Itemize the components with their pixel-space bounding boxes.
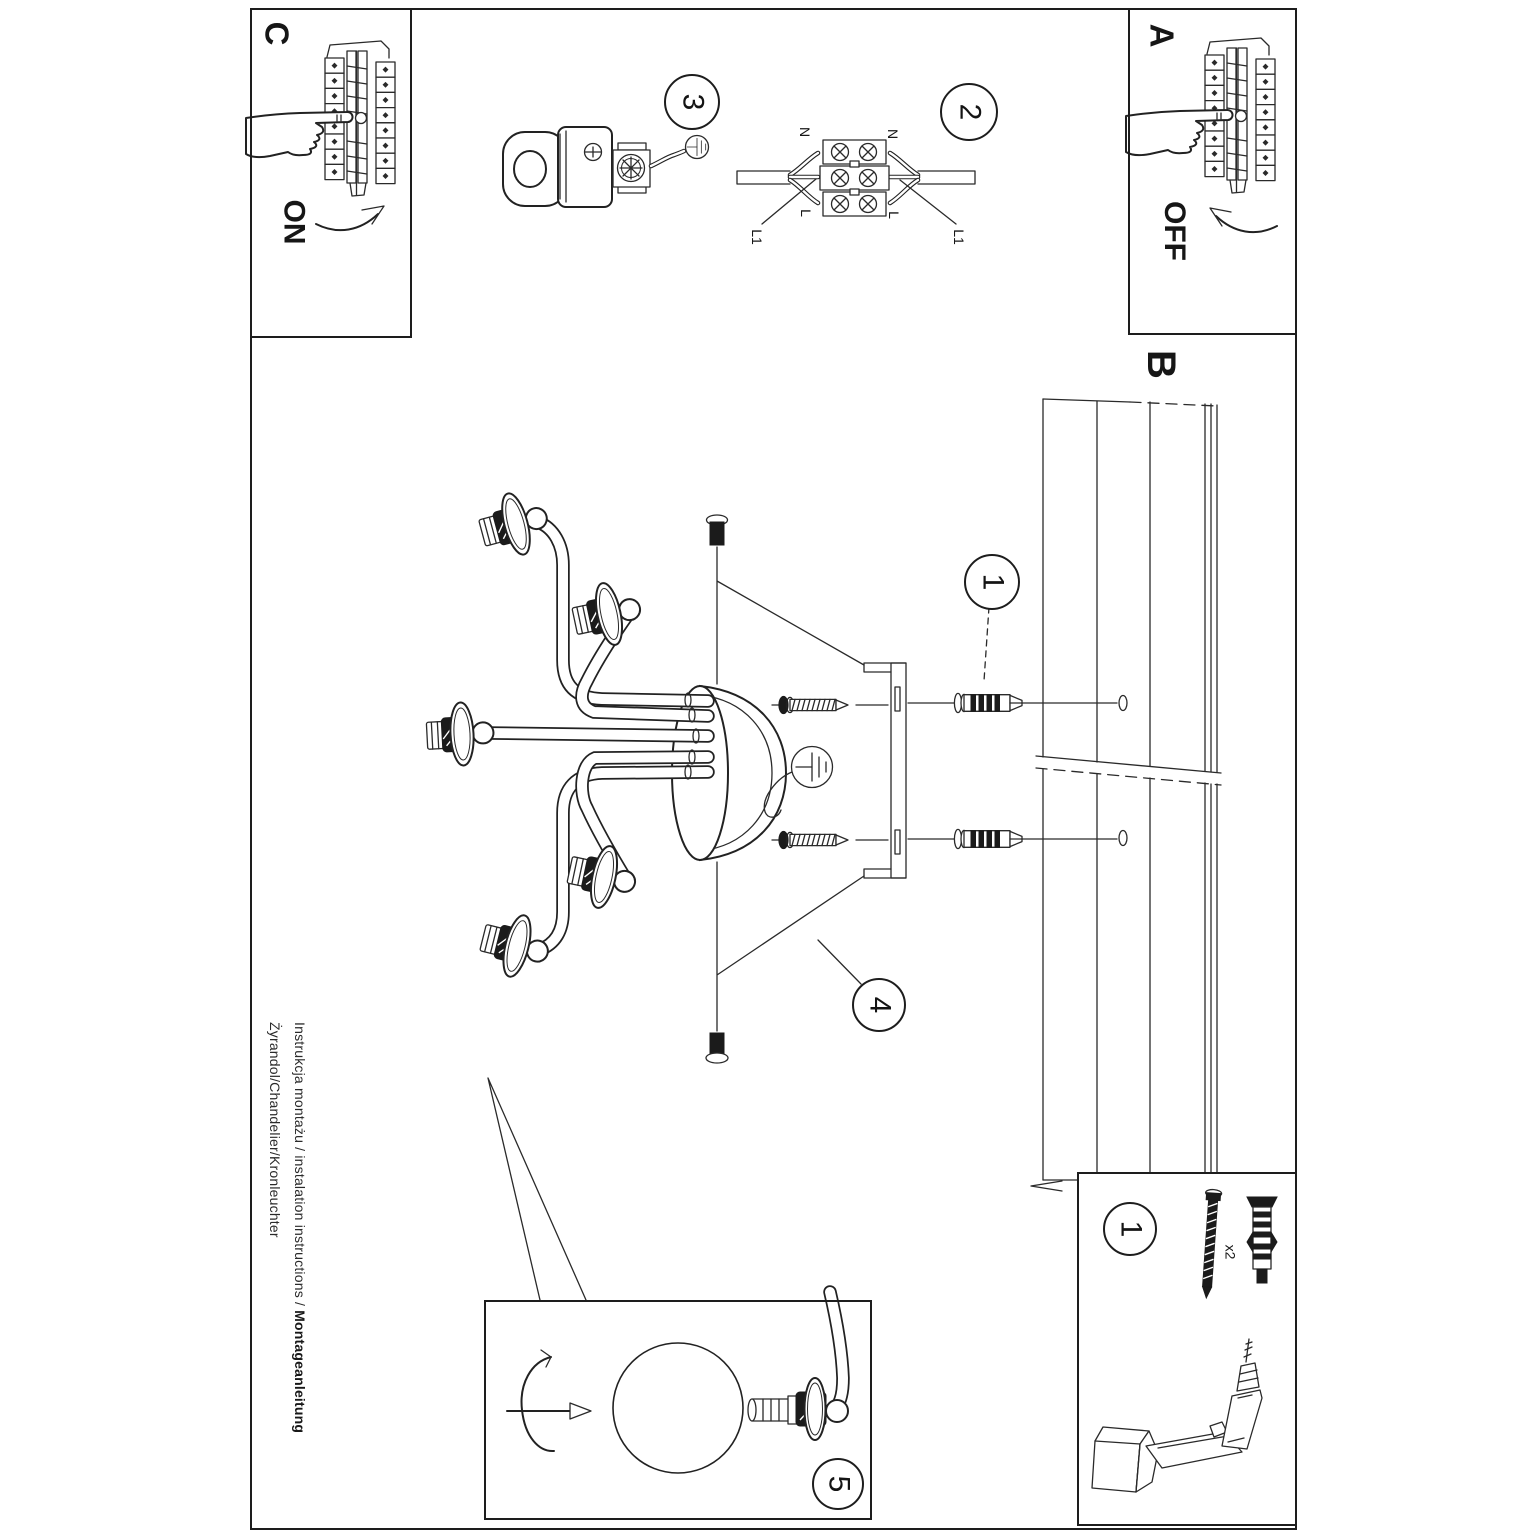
callout-2: 2 bbox=[940, 83, 998, 141]
step-c-label: C bbox=[254, 12, 298, 56]
wire-l1-label: L1 bbox=[945, 219, 973, 255]
switch-on-label: ON bbox=[265, 190, 321, 254]
callout-3: 3 bbox=[664, 74, 720, 130]
footer-title: Instrukcja montażu / instalation instruc… bbox=[292, 1022, 308, 1433]
step-c-box bbox=[250, 8, 412, 338]
callout-1-kit: 1 bbox=[1103, 1202, 1157, 1256]
callout-1: 1 bbox=[964, 554, 1020, 610]
callout-4: 4 bbox=[852, 978, 906, 1032]
wire-l1-label: L1 bbox=[743, 219, 771, 255]
switch-off-label: OFF bbox=[1146, 192, 1202, 270]
footer-product: Żyrandol/Chandelier/Kronleuchter bbox=[267, 1022, 283, 1238]
anchor-qty-label: x2 bbox=[1216, 1238, 1244, 1266]
wire-n-label: N bbox=[793, 119, 817, 145]
step-a-label: A bbox=[1139, 14, 1183, 58]
instruction-sheet: C A B ON OFF N N L L L1 L1 x2 3 2 1 4 5 … bbox=[0, 0, 1540, 1540]
wire-l-label: L bbox=[882, 202, 906, 228]
step-b-label: B bbox=[1132, 340, 1188, 388]
wire-l-label: L bbox=[794, 200, 818, 226]
wire-n-label: N bbox=[881, 121, 905, 147]
callout-5: 5 bbox=[812, 1458, 864, 1510]
